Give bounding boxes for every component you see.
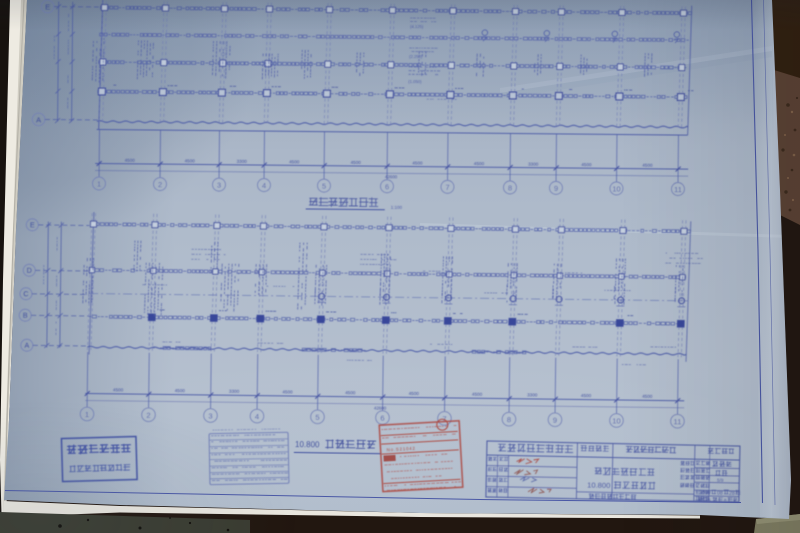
svg-text:9: 9 [553,416,557,425]
svg-text:4500: 4500 [409,391,420,396]
svg-text:4500: 4500 [474,161,485,166]
svg-text:B: B [23,311,28,320]
svg-text:6: 6 [385,182,389,191]
svg-text:(2.250): (2.250) [409,54,423,59]
svg-text:10.800: 10.800 [587,481,610,490]
svg-text:8: 8 [507,415,511,424]
svg-text:D: D [27,266,32,275]
svg-text:4: 4 [262,181,266,190]
svg-text:3300: 3300 [528,161,539,166]
svg-text:6: 6 [380,414,384,423]
svg-text:4500: 4500 [345,390,356,395]
svg-text:10: 10 [612,417,621,426]
svg-text:8: 8 [508,183,512,192]
svg-text:4500: 4500 [351,160,362,165]
svg-text:10.800: 10.800 [295,440,320,449]
svg-text:4500: 4500 [113,388,124,393]
svg-text:9: 9 [554,184,558,193]
svg-text:42600: 42600 [374,406,387,411]
svg-text:7: 7 [445,183,449,192]
svg-text:3300: 3300 [229,389,240,394]
svg-text:A: A [36,115,41,124]
svg-text:A: A [24,341,29,350]
svg-text:42600: 42600 [385,174,398,179]
svg-text:4500: 4500 [412,160,423,165]
svg-text:5: 5 [322,182,326,191]
svg-text:4500: 4500 [289,159,300,164]
svg-text:4500: 4500 [175,388,186,393]
svg-text:3: 3 [208,412,212,421]
svg-text:4500: 4500 [125,158,136,163]
svg-text:4500: 4500 [472,392,483,397]
svg-text:3: 3 [217,181,221,190]
svg-text:4500: 4500 [581,393,592,398]
svg-text:E: E [30,220,35,229]
svg-text:C: C [23,289,28,298]
svg-text:4500: 4500 [185,158,196,163]
svg-text:10: 10 [612,184,620,193]
svg-text:4500: 4500 [282,390,293,395]
svg-text:1: 1 [97,179,101,188]
svg-text:1:100: 1:100 [391,205,403,210]
svg-text:2: 2 [158,180,162,189]
svg-text:(1.050): (1.050) [408,79,422,84]
svg-text:5: 5 [315,413,319,422]
svg-text:4500: 4500 [581,162,592,167]
svg-text:3300: 3300 [237,159,248,164]
svg-text:3300: 3300 [527,393,538,398]
svg-text:4: 4 [255,412,259,421]
